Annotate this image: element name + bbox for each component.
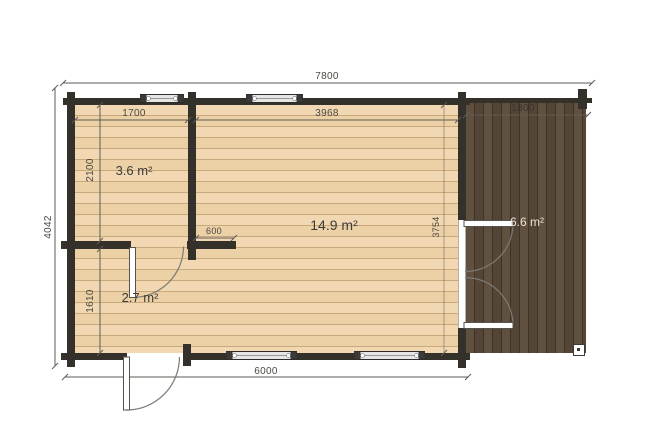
window-top-center (247, 95, 303, 103)
entrance-door-leaf (124, 357, 130, 410)
terrace-french-doors (464, 221, 513, 329)
dim-label-cabin-width: 6000 (236, 366, 296, 378)
dim-label-total-depth: 4042 (43, 197, 55, 257)
floor-plan: 7800 1700 3968 1800 4042 2100 1610 3754 … (0, 0, 650, 446)
window-top-left (141, 95, 184, 103)
area-label-terrace: 6.6 m² (487, 214, 567, 230)
area-label-main-room: 14.9 m² (294, 217, 374, 233)
area-label-entry-room: 2.7 m² (100, 290, 180, 306)
dim-label-total-width: 7800 (297, 71, 357, 83)
window-bottom-left (227, 352, 297, 360)
dim-label-room-small-width: 1700 (104, 108, 164, 120)
dim-label-room-entry-depth: 1610 (85, 271, 97, 331)
dim-label-terrace-width: 1800 (493, 103, 553, 115)
dim-label-wall-return: 600 (184, 225, 244, 237)
terrace-door-leaf-lower (464, 323, 513, 329)
dim-label-room-main-depth: 3754 (430, 197, 442, 257)
dim-label-room-main-width: 3968 (297, 108, 357, 120)
window-bottom-right (355, 352, 425, 360)
area-label-small-room: 3.6 m² (94, 163, 174, 179)
entrance-door (124, 357, 180, 410)
